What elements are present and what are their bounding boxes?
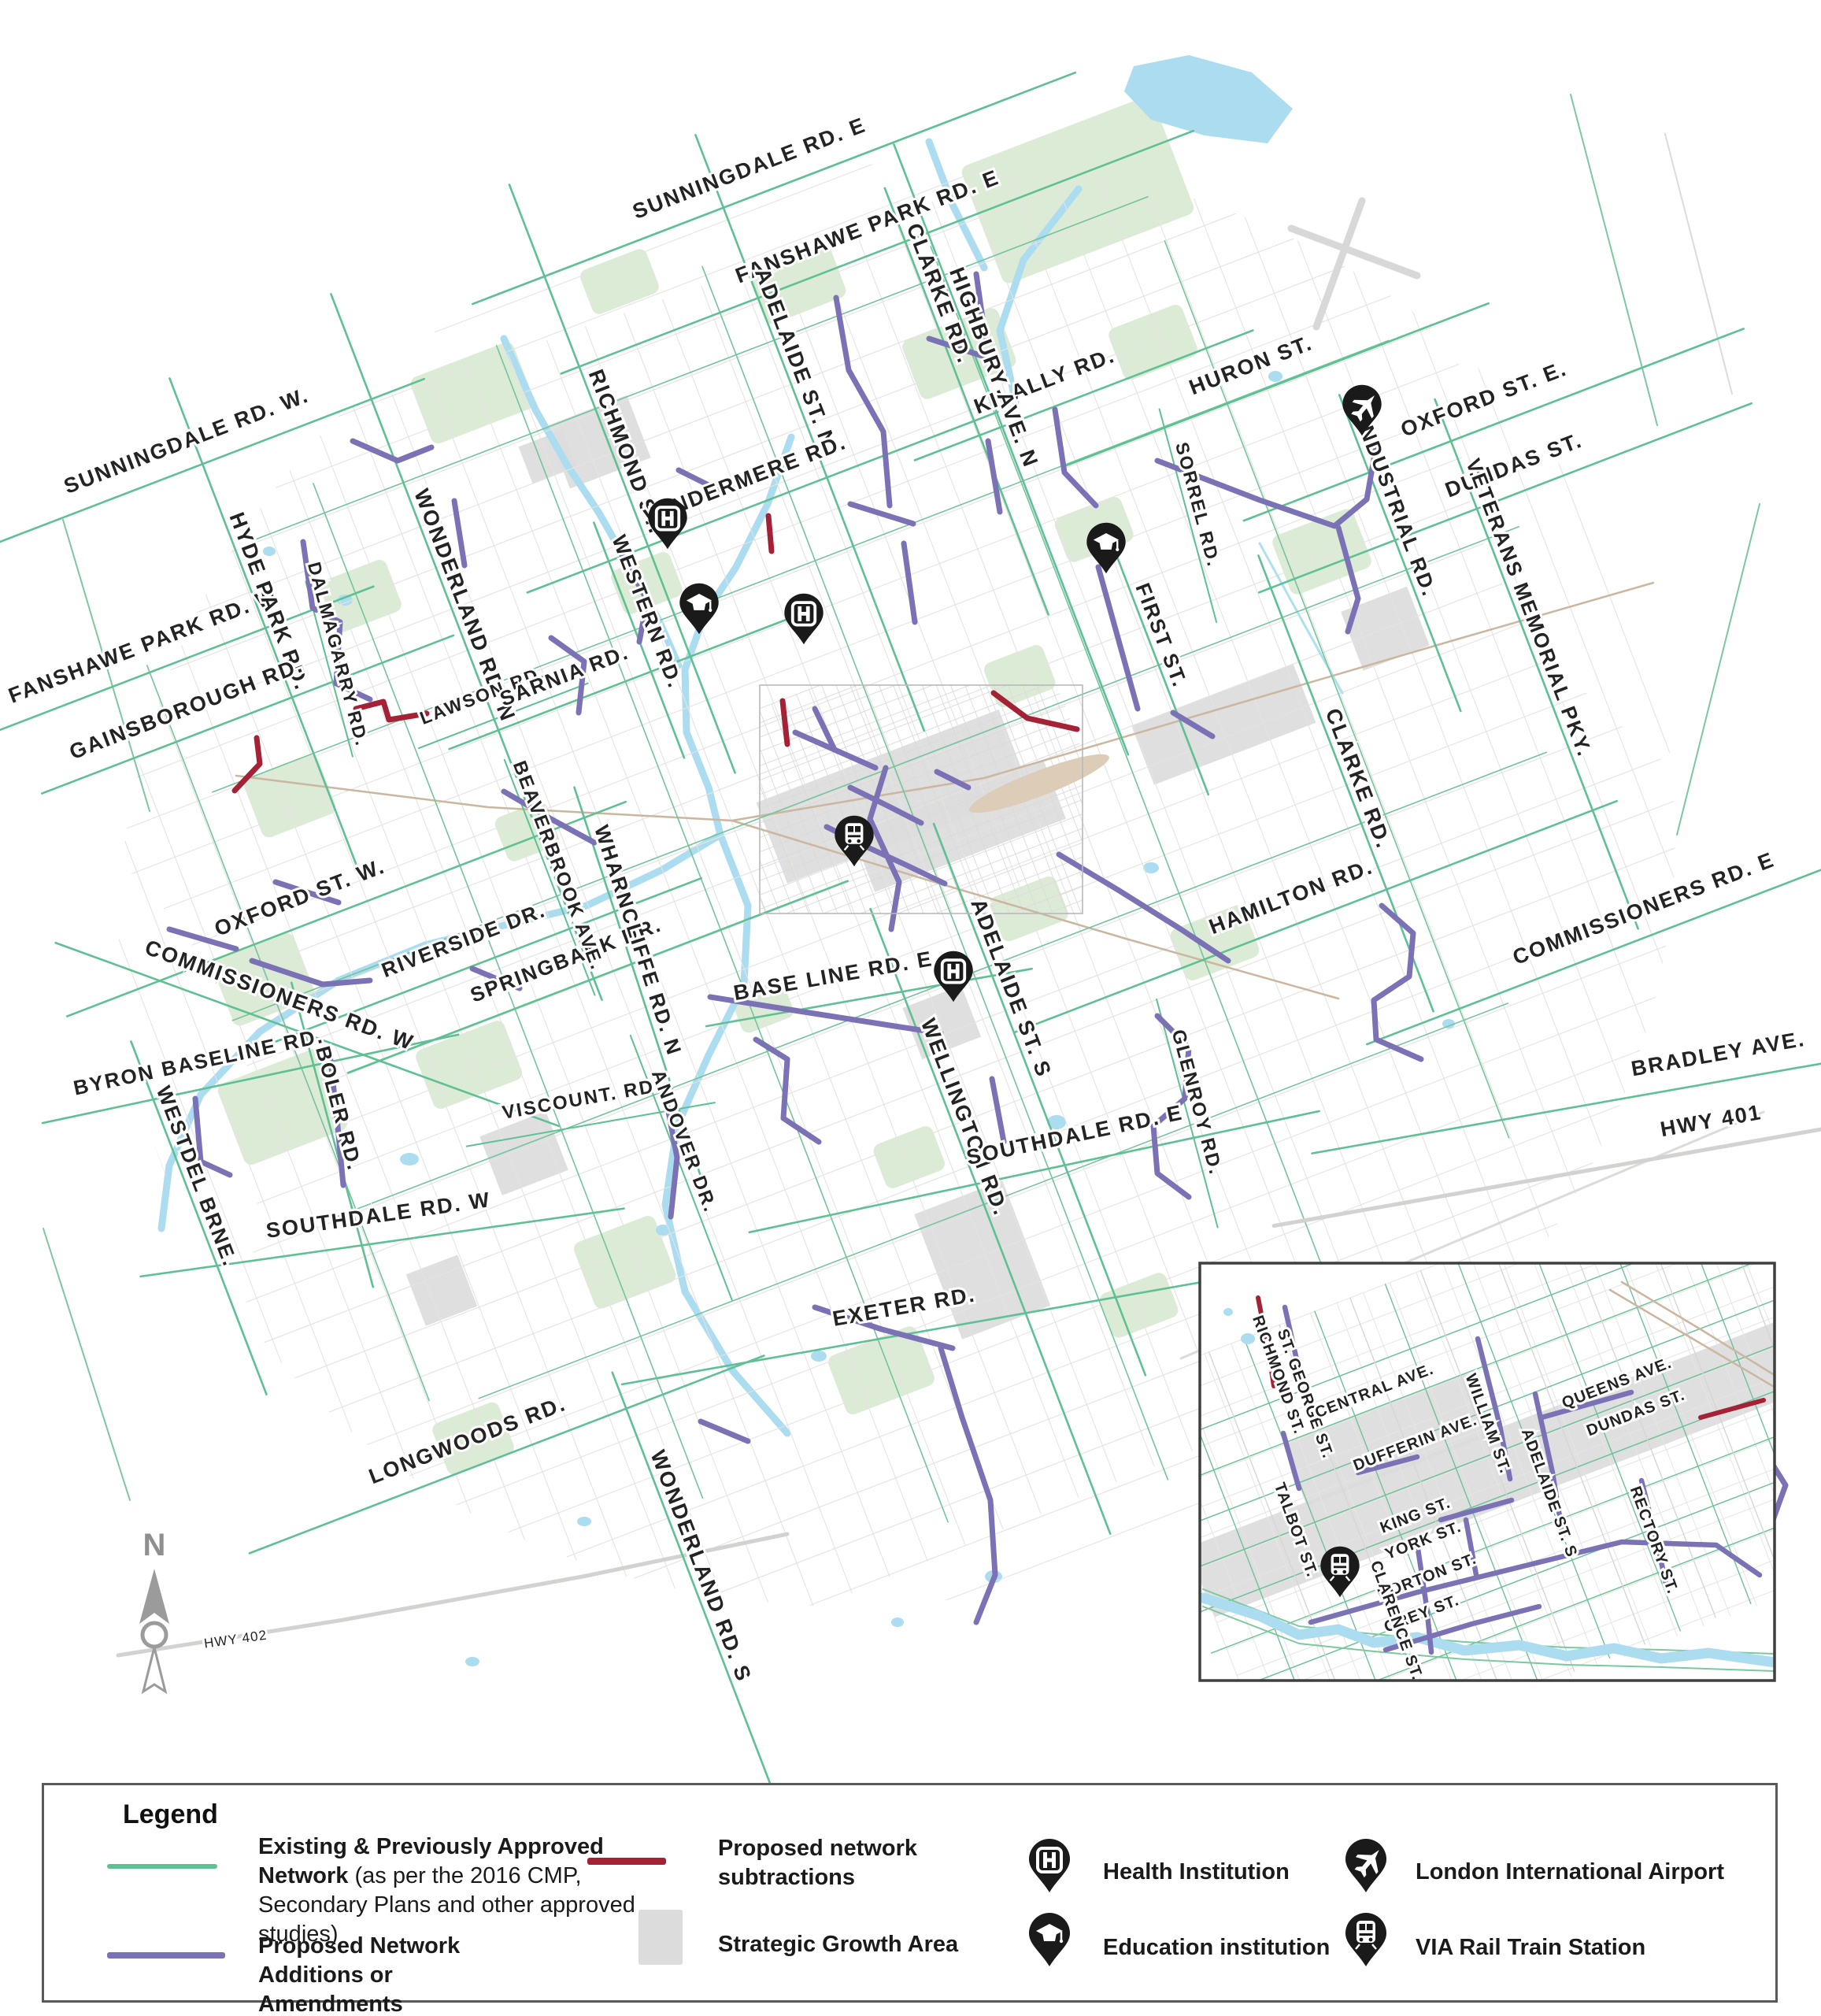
street-label: INDUSTRIAL RD.: [1352, 415, 1442, 600]
street-label: HURON ST.: [1186, 331, 1316, 399]
health-pin: [648, 498, 687, 550]
train-pin-legend-icon: [1343, 1911, 1389, 1971]
education-pin-legend-icon: [1027, 1911, 1072, 1971]
street-label: WESTERN RD.: [607, 532, 687, 691]
north-arrow: N: [139, 1528, 169, 1692]
health-pin: [784, 594, 823, 645]
inset-map: RICHMOND ST.ST. GEORGE ST.CENTRAL AVE.DU…: [1110, 1147, 1821, 1795]
map-page: SUNNINGDALE RD. W.SUNNINGDALE RD. EFANSH…: [0, 0, 1821, 2016]
health-label: Health Institution: [1103, 1858, 1290, 1887]
street-label: SOUTHDALE RD. W: [265, 1188, 492, 1243]
proposed-additions-swatch: [107, 1952, 225, 1959]
education-label: Education institution: [1103, 1933, 1330, 1962]
north-label: N: [143, 1528, 166, 1562]
growth-area-label: Strategic Growth Area: [718, 1930, 986, 1959]
city-map: SUNNINGDALE RD. W.SUNNINGDALE RD. EFANSH…: [0, 0, 1821, 2016]
growth-area-swatch: [638, 1910, 683, 1965]
street-label: BRADLEY AVE.: [1630, 1027, 1808, 1080]
health-pin-legend-icon: [1027, 1837, 1072, 1897]
education-pin: [679, 584, 718, 635]
train-label: VIA Rail Train Station: [1416, 1933, 1645, 1962]
street-label: ANDOVER DR.: [647, 1067, 721, 1216]
proposed-subtractions-label: Proposed network subtractions: [718, 1834, 954, 1892]
airport-pin-legend-icon: [1343, 1837, 1389, 1897]
street-label: CLARKE RD.: [1321, 705, 1397, 852]
existing-network-swatch: [107, 1864, 217, 1869]
legend: Legend Existing & Previously Approved Ne…: [42, 1783, 1778, 2003]
street-label: EXETER RD.: [831, 1282, 977, 1331]
airport-label: London International Airport: [1416, 1858, 1724, 1887]
street-label: WONDERLAND RD. S: [646, 1447, 756, 1685]
legend-title: Legend: [123, 1799, 218, 1830]
street-label: SUNNINGDALE RD. E: [629, 113, 869, 224]
proposed-additions-label: Proposed Network Additions or Amendments: [258, 1932, 542, 2016]
street-label: COMMISSIONERS RD. E: [1509, 847, 1778, 969]
street-label: HWY 402: [203, 1628, 268, 1651]
street-label: SUNNINGDALE RD. W.: [61, 383, 312, 498]
proposed-subtractions-swatch: [587, 1858, 666, 1865]
